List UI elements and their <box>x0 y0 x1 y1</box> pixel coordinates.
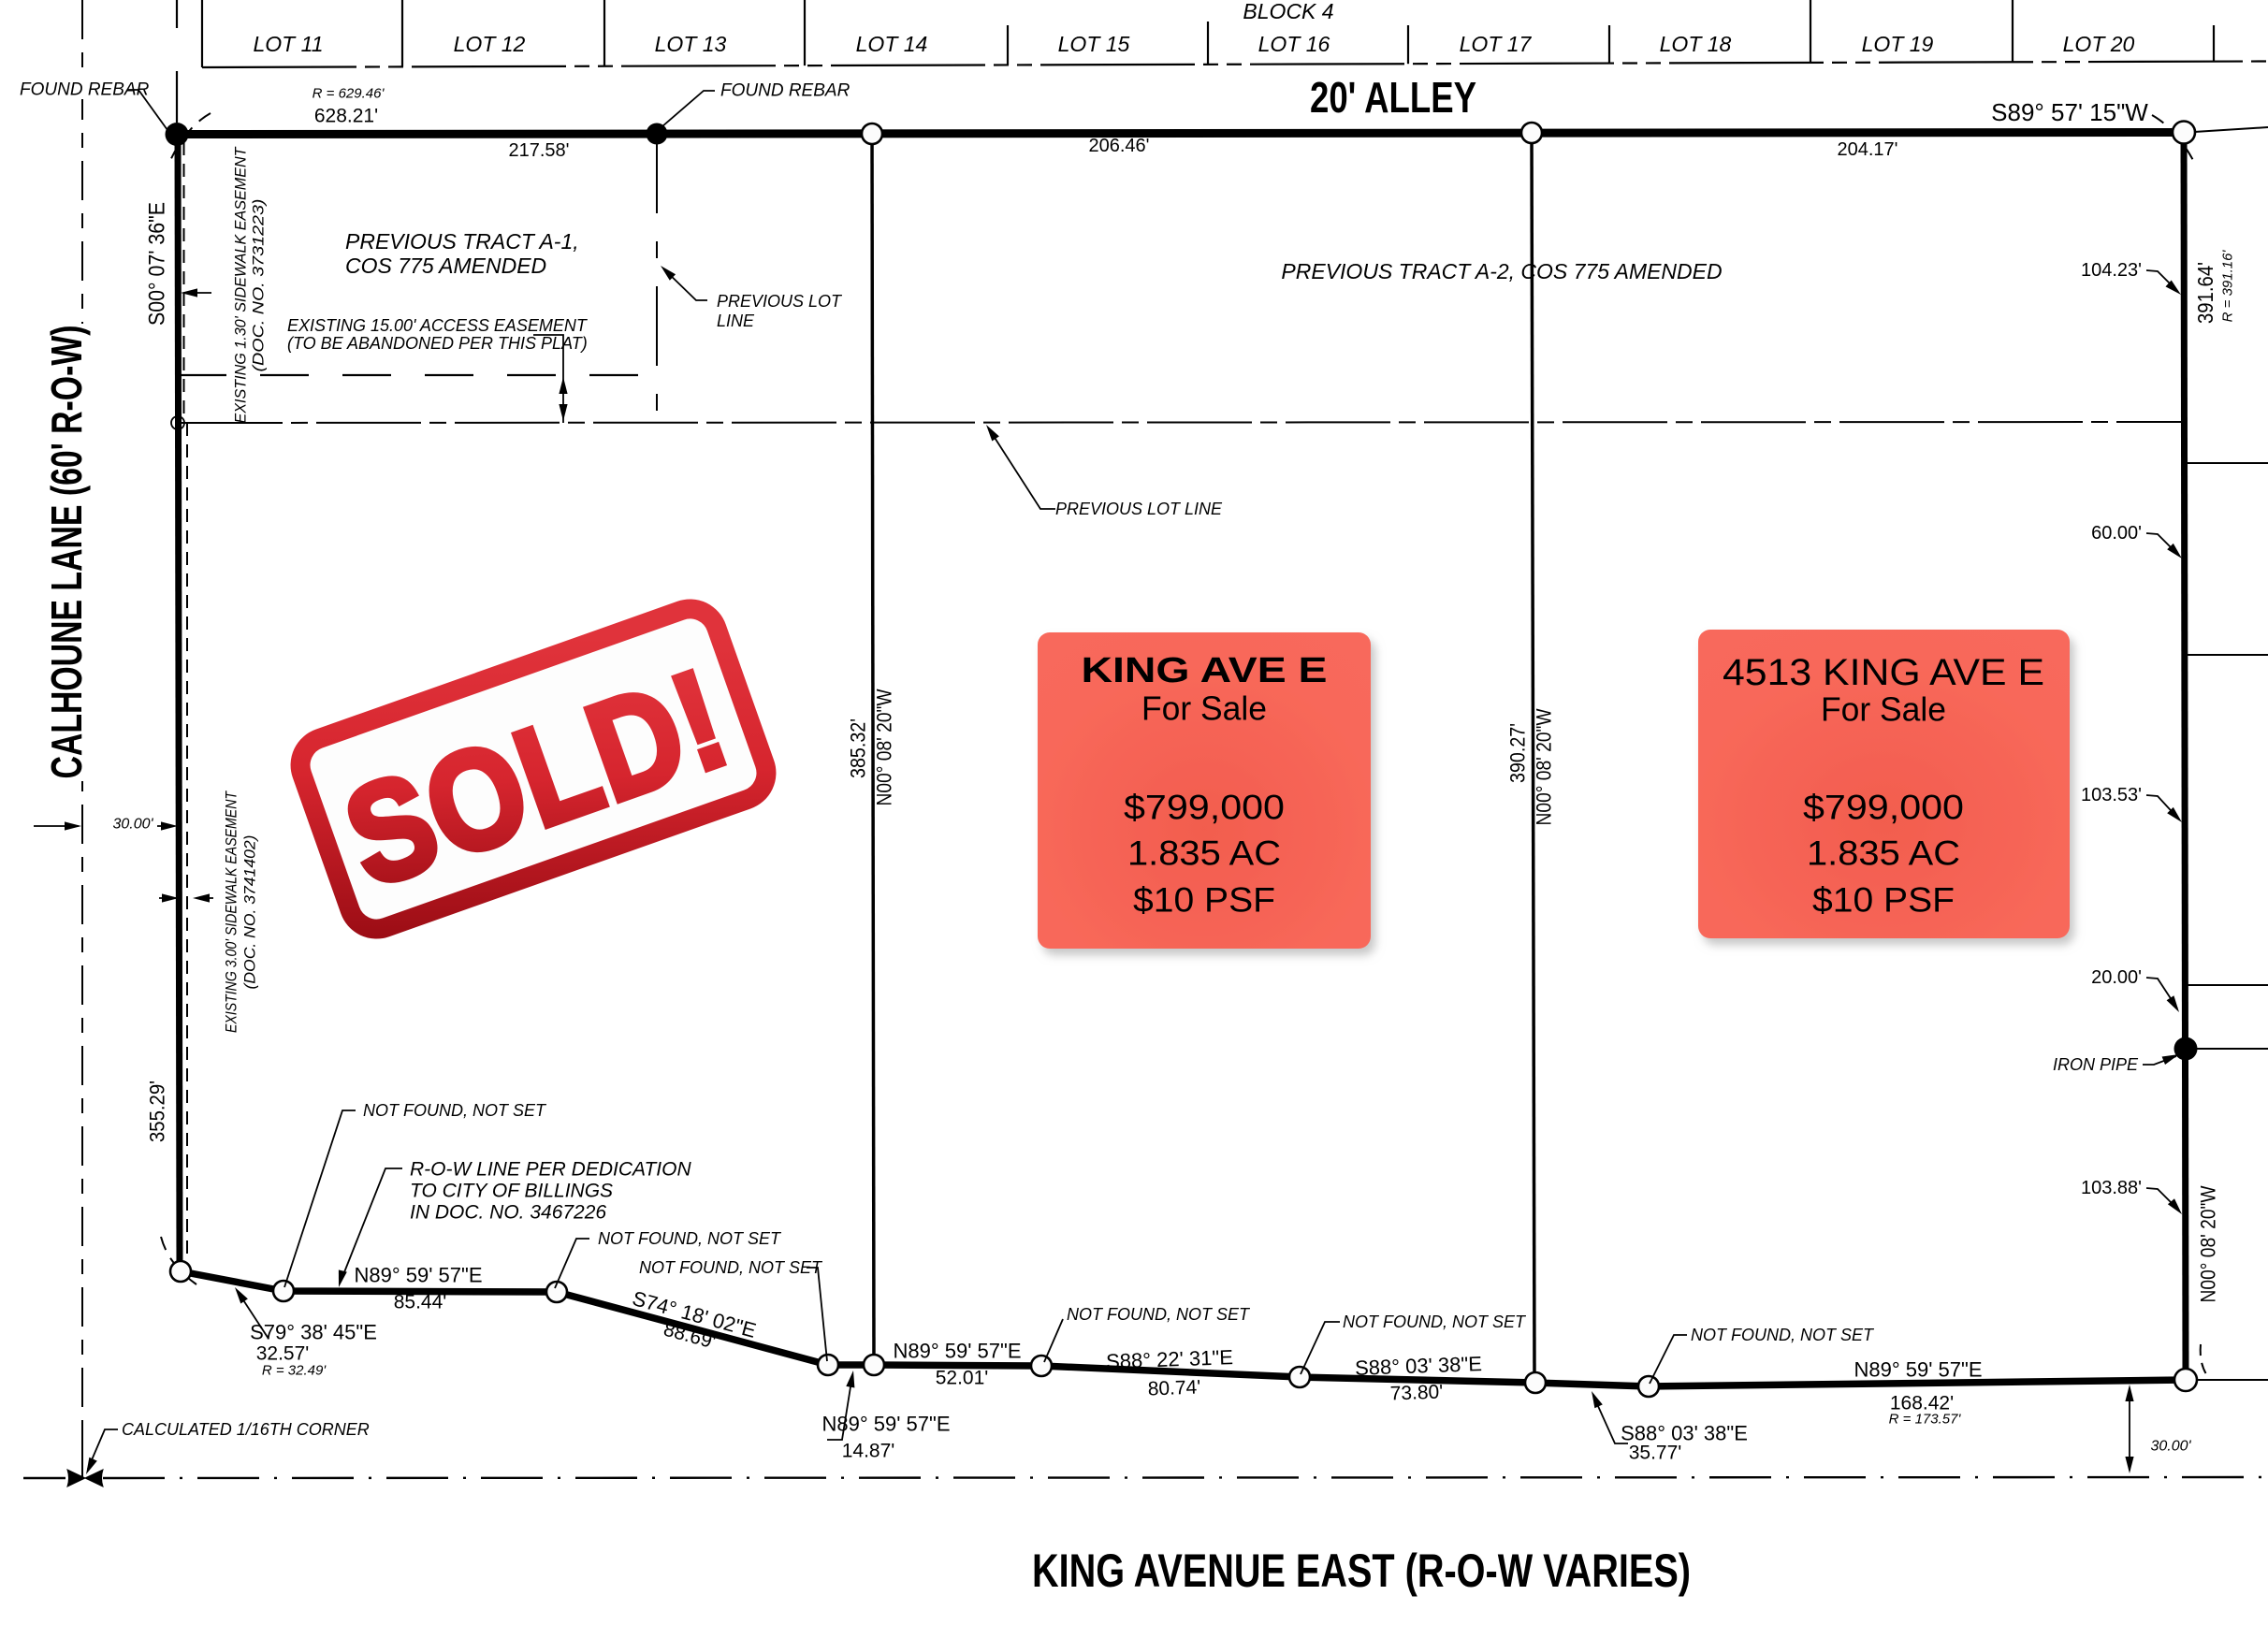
svg-text:30.00': 30.00' <box>112 817 153 833</box>
svg-text:NOT FOUND, NOT SET: NOT FOUND, NOT SET <box>639 1258 823 1277</box>
svg-text:EXISTING 15.00' ACCESS EASEMEN: EXISTING 15.00' ACCESS EASEMENT <box>287 316 589 335</box>
svg-text:14.87': 14.87' <box>842 1441 895 1462</box>
svg-text:PREVIOUS TRACT A-1,: PREVIOUS TRACT A-1, <box>345 229 579 254</box>
svg-text:R = 629.46': R = 629.46' <box>313 86 385 102</box>
svg-text:R = 391.16': R = 391.16' <box>2220 250 2236 323</box>
svg-text:LINE: LINE <box>717 312 755 330</box>
svg-text:LOT 17: LOT 17 <box>1460 32 1533 56</box>
svg-text:LOT 18: LOT 18 <box>1660 32 1732 56</box>
svg-text:For Sale: For Sale <box>1141 689 1267 728</box>
svg-text:206.46': 206.46' <box>1089 136 1150 156</box>
svg-text:N89° 59' 57"E: N89° 59' 57"E <box>1854 1358 1982 1382</box>
svg-text:EXISTING 3.00' SIDEWALK EASEME: EXISTING 3.00' SIDEWALK EASEMENT <box>223 790 240 1033</box>
svg-text:20.00': 20.00' <box>2091 967 2142 988</box>
svg-text:103.53': 103.53' <box>2081 785 2142 805</box>
svg-text:LOT 13: LOT 13 <box>655 32 727 56</box>
svg-text:IRON PIPE: IRON PIPE <box>2053 1055 2139 1074</box>
svg-text:32.57': 32.57' <box>256 1343 310 1365</box>
svg-text:KING AVE E: KING AVE E <box>1082 651 1328 690</box>
svg-text:LOT 12: LOT 12 <box>454 32 526 56</box>
svg-text:204.17': 204.17' <box>1838 139 1898 160</box>
svg-text:217.58': 217.58' <box>509 140 570 161</box>
svg-text:NOT FOUND, NOT SET: NOT FOUND, NOT SET <box>1067 1305 1251 1324</box>
svg-text:$799,000: $799,000 <box>1124 789 1285 827</box>
svg-text:(DOC. NO. 3731223): (DOC. NO. 3731223) <box>250 199 268 372</box>
svg-text:$10 PSF: $10 PSF <box>1812 881 1955 920</box>
svg-text:$10 PSF: $10 PSF <box>1133 881 1275 920</box>
svg-text:COS 775 AMENDED: COS 775 AMENDED <box>345 254 546 278</box>
svg-text:391.64': 391.64' <box>2193 262 2217 324</box>
svg-text:60.00': 60.00' <box>2091 523 2142 544</box>
svg-text:R = 32.49': R = 32.49' <box>262 1363 327 1379</box>
svg-text:S88° 03' 38"E: S88° 03' 38"E <box>1355 1352 1483 1380</box>
svg-text:(TO BE ABANDONED PER THIS PLAT: (TO BE ABANDONED PER THIS PLAT) <box>287 334 588 353</box>
svg-text:CALCULATED 1/16TH CORNER: CALCULATED 1/16TH CORNER <box>122 1420 370 1439</box>
svg-text:LOT 14: LOT 14 <box>856 32 928 56</box>
svg-text:For Sale: For Sale <box>1821 690 1946 729</box>
svg-text:PREVIOUS LOT LINE: PREVIOUS LOT LINE <box>1055 500 1223 518</box>
svg-text:390.27': 390.27' <box>1506 723 1530 783</box>
svg-text:NOT FOUND, NOT SET: NOT FOUND, NOT SET <box>1691 1326 1875 1344</box>
svg-text:BLOCK 4: BLOCK 4 <box>1243 0 1333 23</box>
svg-text:$799,000: $799,000 <box>1803 789 1964 827</box>
svg-text:S88° 22' 31"E: S88° 22' 31"E <box>1106 1345 1234 1373</box>
svg-text:S79° 38' 45"E: S79° 38' 45"E <box>250 1321 377 1344</box>
svg-text:LOT 20: LOT 20 <box>2063 32 2135 56</box>
svg-text:TO CITY OF BILLINGS: TO CITY OF BILLINGS <box>410 1181 613 1202</box>
svg-text:IN DOC. NO. 3467226: IN DOC. NO. 3467226 <box>410 1202 606 1224</box>
svg-text:4513 KING AVE E: 4513 KING AVE E <box>1723 652 2044 693</box>
svg-text:NOT FOUND, NOT SET: NOT FOUND, NOT SET <box>363 1101 547 1120</box>
svg-text:NOT FOUND, NOT SET: NOT FOUND, NOT SET <box>598 1229 782 1248</box>
svg-text:EXISTING 1.30' SIDEWALK EASEME: EXISTING 1.30' SIDEWALK EASEMENT <box>232 146 250 424</box>
svg-text:N00° 08' 20"W: N00° 08' 20"W <box>1533 708 1556 825</box>
svg-text:S00° 07' 36"E: S00° 07' 36"E <box>145 202 170 326</box>
svg-text:355.29': 355.29' <box>146 1081 169 1142</box>
svg-text:103.88': 103.88' <box>2081 1178 2142 1198</box>
svg-text:1.835 AC: 1.835 AC <box>1127 834 1281 873</box>
svg-text:LOT 15: LOT 15 <box>1058 32 1130 56</box>
svg-text:73.80': 73.80' <box>1389 1382 1443 1405</box>
svg-text:1.835 AC: 1.835 AC <box>1807 834 1960 873</box>
svg-text:PREVIOUS LOT: PREVIOUS LOT <box>717 292 843 311</box>
svg-text:85.44': 85.44' <box>394 1292 447 1313</box>
svg-text:LOT 16: LOT 16 <box>1258 32 1330 56</box>
svg-text:30.00': 30.00' <box>2150 1439 2191 1455</box>
svg-text:LOT 11: LOT 11 <box>254 32 324 56</box>
svg-text:N00° 08' 20"W: N00° 08' 20"W <box>2197 1185 2220 1302</box>
svg-text:FOUND REBAR: FOUND REBAR <box>20 80 150 100</box>
svg-text:104.23': 104.23' <box>2081 260 2142 281</box>
svg-text:R = 173.57': R = 173.57' <box>1889 1412 1962 1428</box>
svg-text:N00° 08' 20"W: N00° 08' 20"W <box>873 689 896 805</box>
svg-text:NOT FOUND, NOT SET: NOT FOUND, NOT SET <box>1343 1313 1527 1331</box>
svg-text:R-O-W LINE PER DEDICATION: R-O-W LINE PER DEDICATION <box>410 1159 691 1181</box>
svg-text:FOUND REBAR: FOUND REBAR <box>720 81 850 101</box>
svg-text:80.74': 80.74' <box>1147 1377 1200 1400</box>
svg-text:35.77': 35.77' <box>1629 1443 1682 1464</box>
svg-text:385.32': 385.32' <box>847 718 870 778</box>
svg-text:KING AVENUE EAST (R-O-W VARIES: KING AVENUE EAST (R-O-W VARIES) <box>1032 1545 1691 1597</box>
svg-text:N89° 59' 57"E: N89° 59' 57"E <box>893 1340 1021 1363</box>
svg-text:N89° 59' 57"E: N89° 59' 57"E <box>821 1413 950 1436</box>
svg-text:CALHOUNE LANE (60' R-O-W): CALHOUNE LANE (60' R-O-W) <box>42 326 91 779</box>
svg-text:628.21': 628.21' <box>314 106 378 127</box>
svg-text:52.01': 52.01' <box>936 1368 989 1389</box>
svg-text:PREVIOUS TRACT A-2, COS 775 AM: PREVIOUS TRACT A-2, COS 775 AMENDED <box>1281 259 1722 283</box>
svg-text:N89° 59' 57"E: N89° 59' 57"E <box>354 1264 482 1287</box>
svg-text:20' ALLEY: 20' ALLEY <box>1310 73 1476 122</box>
svg-text:LOT 19: LOT 19 <box>1862 32 1934 56</box>
svg-text:(DOC. NO. 3741402): (DOC. NO. 3741402) <box>241 835 259 990</box>
svg-text:S89° 57' 15"W: S89° 57' 15"W <box>1991 98 2148 126</box>
